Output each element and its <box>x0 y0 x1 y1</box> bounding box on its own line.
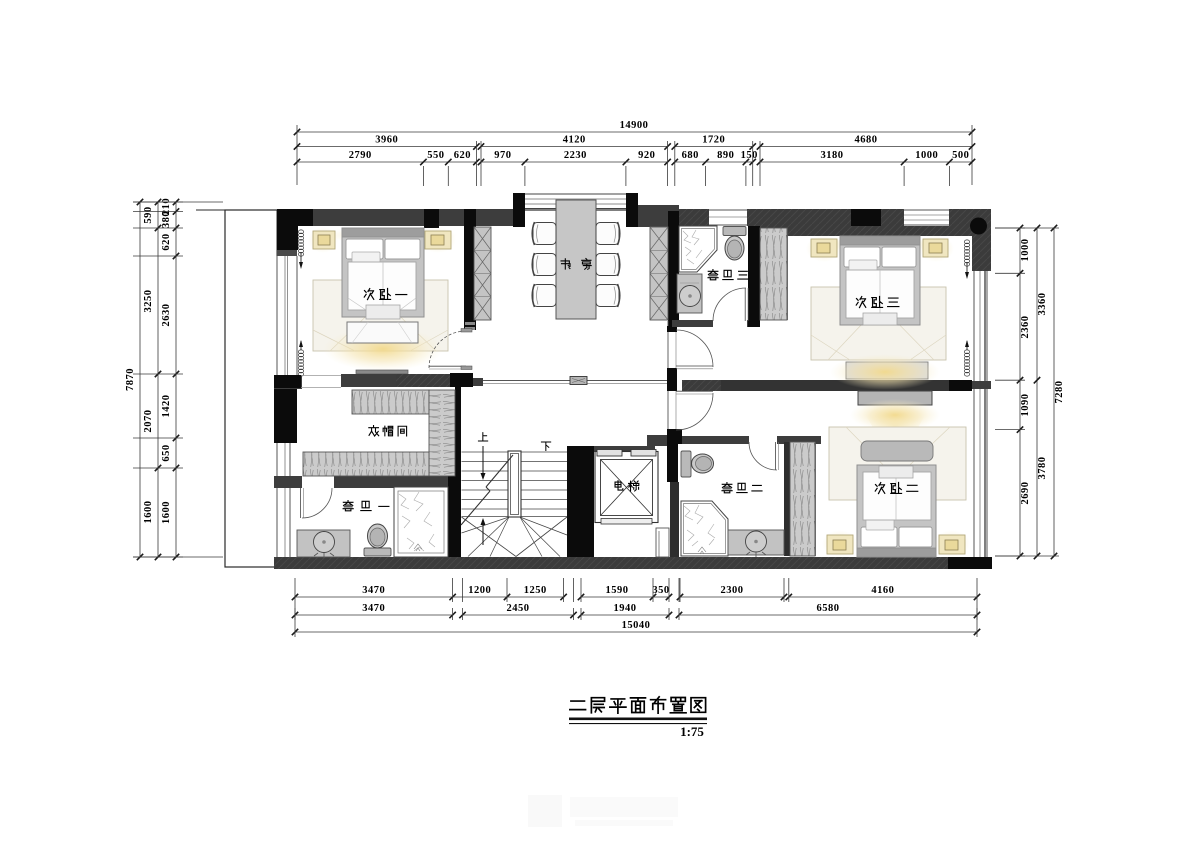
svg-text:1600: 1600 <box>143 501 154 524</box>
svg-text:3470: 3470 <box>362 585 385 596</box>
svg-text:380: 380 <box>161 211 172 228</box>
svg-text:1090: 1090 <box>1020 394 1031 417</box>
svg-text:2230: 2230 <box>564 150 587 161</box>
svg-text:890: 890 <box>717 150 734 161</box>
svg-text:15040: 15040 <box>622 620 651 631</box>
svg-text:1000: 1000 <box>1020 239 1031 262</box>
svg-text:3180: 3180 <box>821 150 844 161</box>
svg-text:6580: 6580 <box>817 603 840 614</box>
svg-text:3470: 3470 <box>362 603 385 614</box>
svg-text:3250: 3250 <box>143 290 154 313</box>
svg-text:4120: 4120 <box>563 135 586 146</box>
svg-text:620: 620 <box>454 150 471 161</box>
svg-text:2690: 2690 <box>1020 482 1031 505</box>
svg-text:1720: 1720 <box>702 135 725 146</box>
svg-text:4680: 4680 <box>855 135 878 146</box>
svg-text:550: 550 <box>427 150 444 161</box>
svg-text:1000: 1000 <box>915 150 938 161</box>
svg-text:7280: 7280 <box>1054 381 1065 404</box>
svg-text:1200: 1200 <box>468 585 491 596</box>
svg-text:970: 970 <box>494 150 511 161</box>
svg-text:1940: 1940 <box>614 603 637 614</box>
svg-text:4160: 4160 <box>871 585 894 596</box>
svg-text:680: 680 <box>682 150 699 161</box>
svg-text:2070: 2070 <box>143 410 154 433</box>
svg-text:2360: 2360 <box>1020 316 1031 339</box>
svg-text:590: 590 <box>143 206 154 223</box>
svg-text:1:75: 1:75 <box>680 724 704 739</box>
svg-text:3780: 3780 <box>1037 457 1048 480</box>
svg-text:150: 150 <box>741 150 758 161</box>
svg-text:14900: 14900 <box>620 120 649 131</box>
svg-text:650: 650 <box>161 444 172 461</box>
svg-text:2630: 2630 <box>161 304 172 327</box>
svg-text:920: 920 <box>638 150 655 161</box>
svg-text:2450: 2450 <box>507 603 530 614</box>
svg-text:1420: 1420 <box>161 395 172 418</box>
svg-text:1600: 1600 <box>161 501 172 524</box>
svg-text:1250: 1250 <box>524 585 547 596</box>
svg-text:1590: 1590 <box>606 585 629 596</box>
svg-text:350: 350 <box>652 585 669 596</box>
svg-text:7870: 7870 <box>125 368 136 391</box>
svg-text:620: 620 <box>161 233 172 250</box>
svg-text:2300: 2300 <box>721 585 744 596</box>
svg-text:3360: 3360 <box>1037 293 1048 316</box>
svg-text:2790: 2790 <box>349 150 372 161</box>
svg-text:3960: 3960 <box>375 135 398 146</box>
svg-text:500: 500 <box>952 150 969 161</box>
